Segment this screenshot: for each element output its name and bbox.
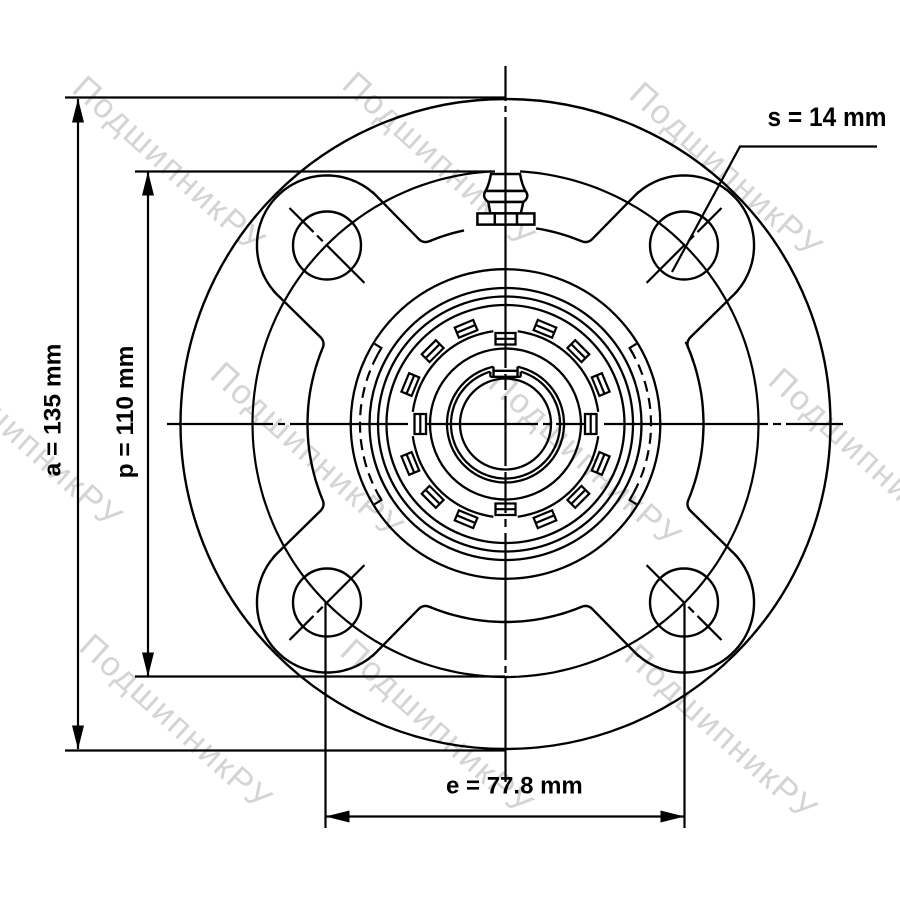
svg-text:e = 77.8 mm: e = 77.8 mm [446,773,583,800]
svg-text:s = 14 mm: s = 14 mm [768,102,887,132]
svg-text:a = 135 mm: a = 135 mm [40,344,67,477]
svg-text:p = 110 mm: p = 110 mm [112,346,139,479]
